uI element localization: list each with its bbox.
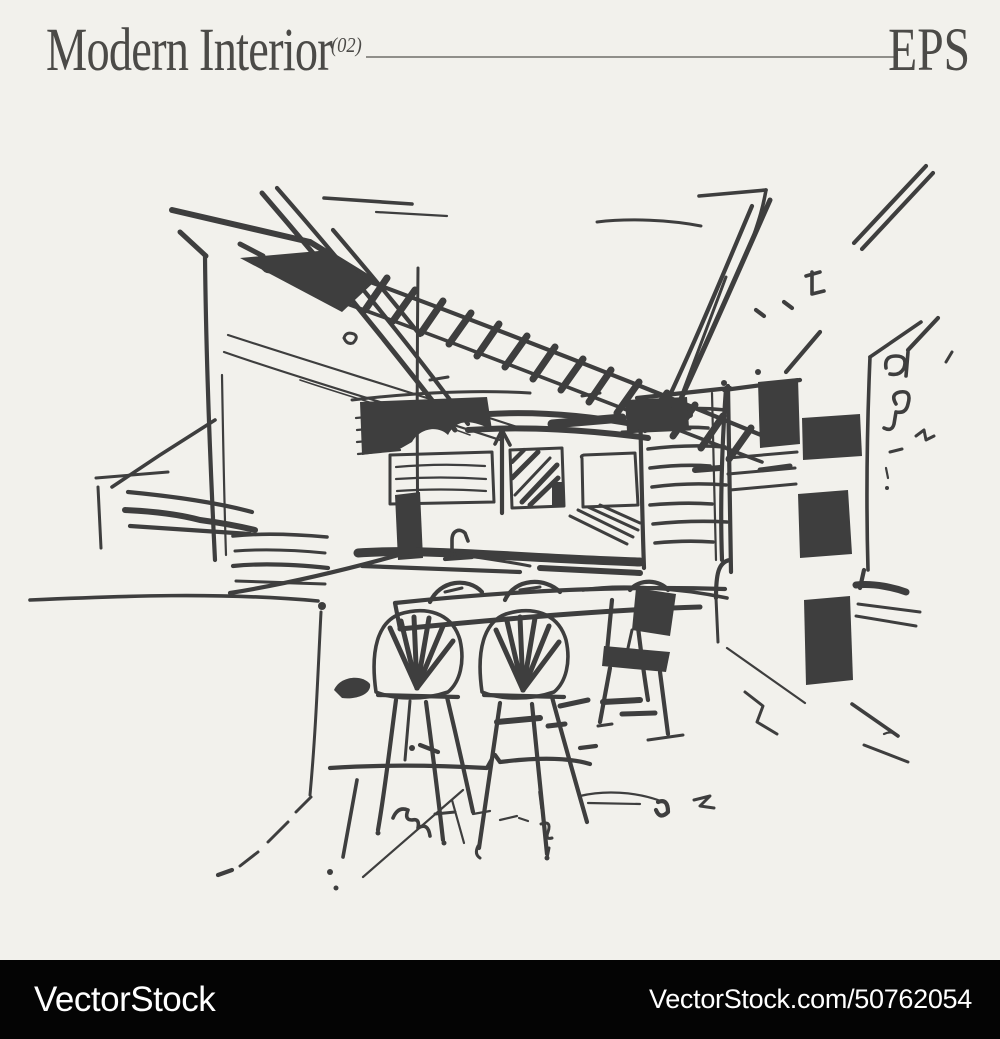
interior-sketch-illustration <box>0 0 1000 1039</box>
brand-logo: VectorStock <box>34 980 215 1020</box>
attribution-url: VectorStock.com/50762054 <box>649 984 972 1015</box>
right-shelving-sketch <box>716 322 934 685</box>
watermark-bar: VectorStock VectorStock.com/50762054 <box>0 960 1000 1039</box>
ceiling-sketch <box>180 166 952 438</box>
stock-image-preview: Modern Interior (02) EPS <box>0 0 1000 1039</box>
